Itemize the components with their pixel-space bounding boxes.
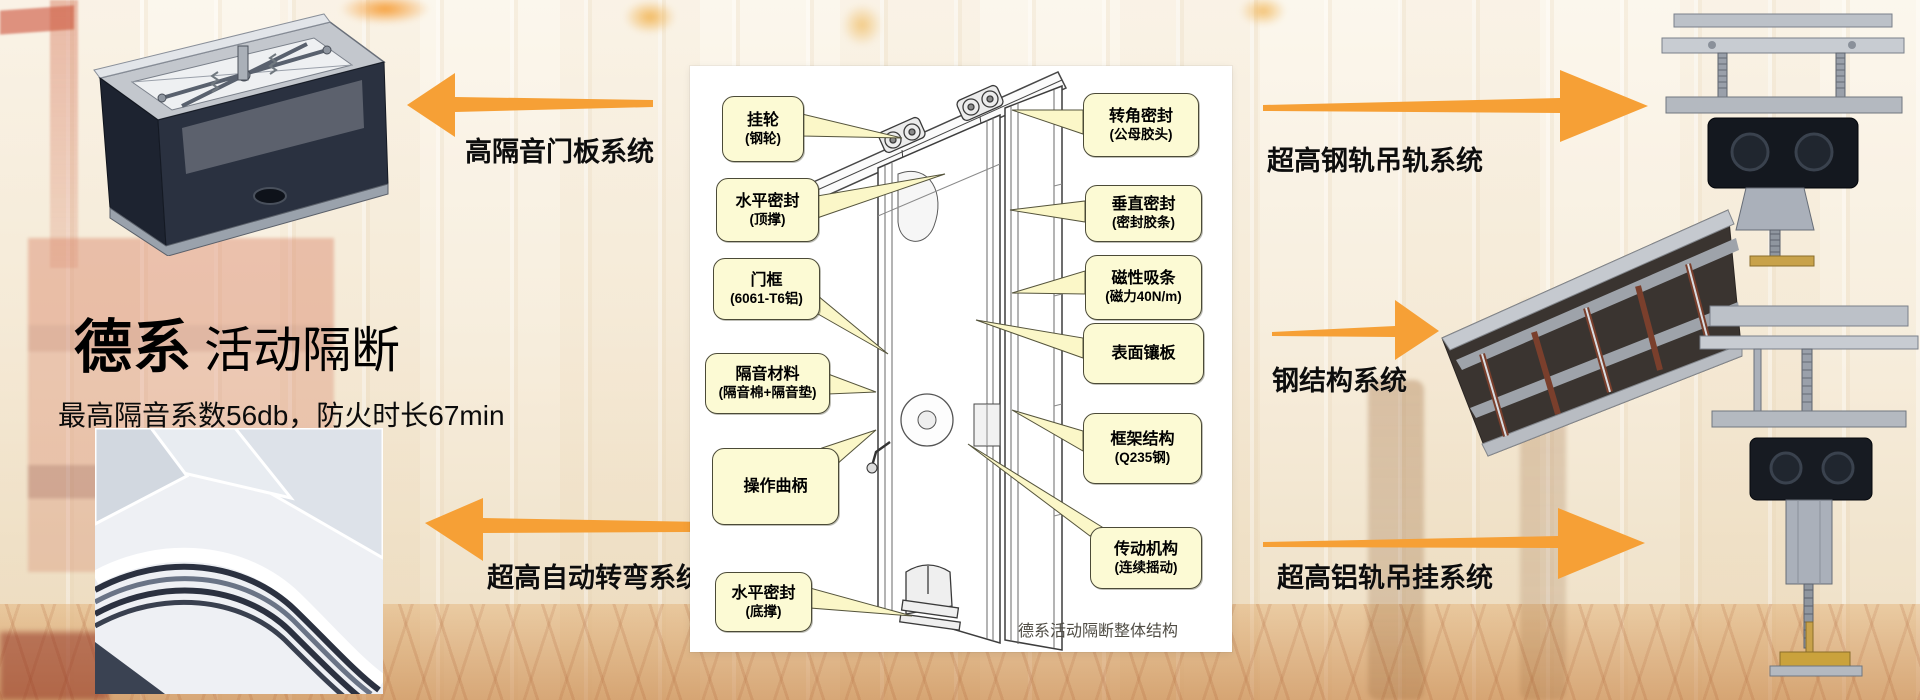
diagram-caption: 德系活动隔断整体结构 <box>1018 617 1178 641</box>
callout-text: 水平密封 <box>735 192 799 212</box>
red-pillar <box>50 0 78 268</box>
carpet-dark-patch <box>0 632 108 700</box>
callout-frame-structure: 框架结构 (Q235钢) <box>1083 413 1202 484</box>
page-title: 德系活动隔断 <box>74 300 554 384</box>
callout-subtext: (顶撑) <box>750 212 786 229</box>
ceiling-light-glow <box>1240 0 1286 26</box>
callout-subtext: (连续摇动) <box>1115 560 1178 577</box>
callout-surface-panel: 表面镶板 <box>1083 323 1204 384</box>
callout-text: 表面镶板 <box>1111 344 1175 364</box>
callout-subtext: (钢轮) <box>745 131 781 148</box>
aluminum-rail-hanger-illustration <box>1698 292 1920 700</box>
title-block: 德系活动隔断 最高隔音系数56db，防火时长67min <box>74 300 554 434</box>
callout-magnetic-strip: 磁性吸条 (磁力40N/m) <box>1085 255 1202 320</box>
arrow-steel-rail <box>1258 65 1653 150</box>
callout-corner-seal: 转角密封 (公母胶头) <box>1083 93 1199 157</box>
callout-vertical-seal: 垂直密封 (密封胶条) <box>1085 185 1202 242</box>
label-steel-rail-system: 超高钢轨吊轨系统 <box>1267 139 1483 178</box>
ceiling-red-beam <box>0 5 74 34</box>
callout-hanging-wheel: 挂轮 (钢轮) <box>722 96 804 162</box>
callout-subtext: (密封胶条) <box>1112 215 1175 232</box>
photo-curved-track <box>95 428 383 694</box>
slide-canvas: 德系活动隔断 最高隔音系数56db，防火时长67min 高隔音门板系统 超高自动… <box>0 0 1920 700</box>
callout-subtext: (底撑) <box>746 604 782 621</box>
callout-subtext: (隔音棉+隔音垫) <box>719 385 817 402</box>
callout-subtext: (磁力40N/m) <box>1105 289 1182 306</box>
callout-transmission: 传动机构 (连续摇动) <box>1090 527 1202 589</box>
callout-text: 垂直密封 <box>1111 195 1175 215</box>
callout-text: 操作曲柄 <box>743 477 807 497</box>
label-steel-structure-system: 钢结构系统 <box>1272 359 1407 398</box>
ceiling-light-glow <box>842 4 882 46</box>
callout-sound-insulation: 隔音材料 (隔音棉+隔音垫) <box>705 353 830 414</box>
label-auto-turn-system: 超高自动转弯系统 <box>487 556 703 595</box>
callout-text: 传动机构 <box>1114 540 1178 560</box>
title-subtitle: 最高隔音系数56db，防火时长67min <box>58 394 554 434</box>
callout-text: 门框 <box>750 271 782 291</box>
callout-text: 转角密封 <box>1109 107 1173 127</box>
label-aluminum-rail-system: 超高铝轨吊挂系统 <box>1277 556 1493 595</box>
callout-text: 挂轮 <box>747 111 779 131</box>
callout-text: 框架结构 <box>1110 430 1174 450</box>
callout-operating-crank: 操作曲柄 <box>712 448 839 525</box>
title-rest: 活动隔断 <box>204 324 400 378</box>
photo-aluminum-rail-hanger <box>1698 292 1920 700</box>
callout-text: 水平密封 <box>731 584 795 604</box>
callout-subtext: (6061-T6铝) <box>730 291 803 308</box>
right-arrow-icon <box>1267 292 1442 367</box>
right-arrow-icon <box>1258 65 1653 150</box>
door-panel-mechanism-illustration <box>92 8 392 256</box>
photo-door-panel-mechanism <box>92 8 392 256</box>
curved-track-illustration <box>95 428 383 694</box>
structure-diagram-panel: 挂轮 (钢轮) 水平密封 (顶撑) 门框 (6061-T6铝) 隔音材料 (隔音… <box>690 66 1232 652</box>
callout-subtext: (公母胶头) <box>1110 127 1173 144</box>
label-door-panel-system: 高隔音门板系统 <box>465 130 654 169</box>
title-emphasis: 德系 <box>74 315 192 380</box>
callout-horizontal-seal-top: 水平密封 (顶撑) <box>716 178 819 242</box>
callout-text: 磁性吸条 <box>1111 269 1175 289</box>
callout-door-frame: 门框 (6061-T6铝) <box>713 258 820 320</box>
callout-text: 隔音材料 <box>735 365 799 385</box>
callout-horizontal-seal-bottom: 水平密封 (底撑) <box>715 572 812 632</box>
ceiling-light-glow <box>624 0 676 34</box>
callout-subtext: (Q235钢) <box>1115 450 1171 467</box>
arrow-steel-structure <box>1267 292 1442 367</box>
